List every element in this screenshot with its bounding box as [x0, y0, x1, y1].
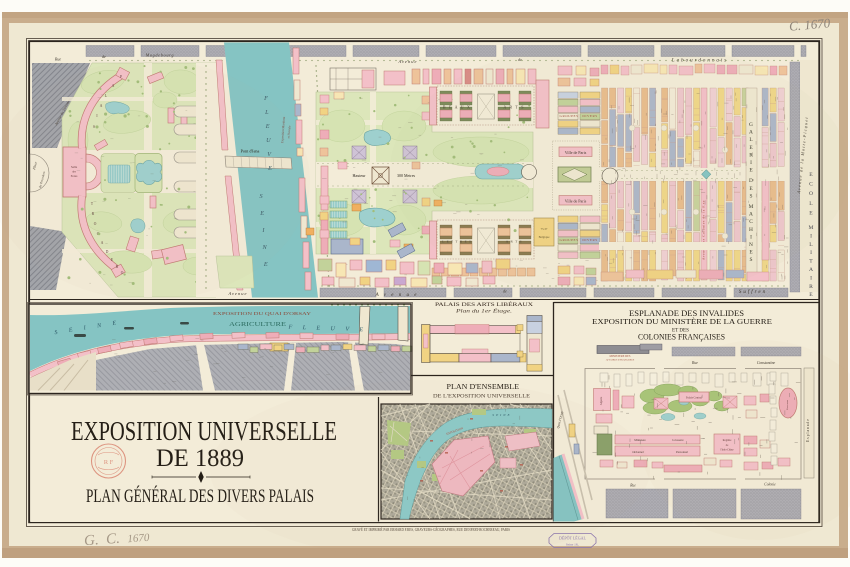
svg-text:Avenue: Avenue — [398, 59, 418, 64]
svg-text:R F: R F — [104, 459, 114, 466]
svg-text:AFFAIRES ETRANGERES: AFFAIRES ETRANGERES — [606, 359, 635, 362]
svg-text:ESPLANADE DES INVALIDES: ESPLANADE DES INVALIDES — [629, 309, 744, 318]
svg-text:A: A — [809, 267, 813, 273]
svg-text:EXPOSITION DU QUAI D'ORSAY: EXPOSITION DU QUAI D'ORSAY — [213, 311, 312, 316]
svg-text:AGRICULTURE: AGRICULTURE — [229, 321, 286, 328]
svg-text:E: E — [809, 292, 813, 298]
svg-text:R: R — [809, 284, 813, 290]
svg-text:de: de — [102, 54, 106, 59]
svg-text:A v e n u e: A v e n u e — [375, 293, 419, 298]
svg-text:Magdebourg: Magdebourg — [145, 53, 175, 58]
svg-text:PALAIS DES ARTS LIBÉRAUX: PALAIS DES ARTS LIBÉRAUX — [435, 300, 533, 308]
svg-text:Algerie: Algerie — [600, 396, 603, 405]
svg-text:Plan du 1er Étage.: Plan du 1er Étage. — [455, 309, 512, 315]
svg-text:T: T — [809, 259, 813, 265]
svg-text:Seine 18..: Seine 18.. — [566, 543, 580, 547]
svg-text:I: I — [810, 250, 812, 256]
svg-text:EXPOSITION DU MINISTÈRE DE LA: EXPOSITION DU MINISTÈRE DE LA GUERRE — [592, 316, 773, 326]
svg-text:Rue: Rue — [54, 57, 61, 62]
svg-text:Hauteur: Hauteur — [353, 173, 367, 178]
svg-text:de: de — [503, 289, 507, 294]
svg-text:COLONIES FRANÇAISES: COLONIES FRANÇAISES — [638, 333, 725, 342]
svg-text:Suffren: Suffren — [739, 290, 767, 295]
svg-text:I: I — [810, 275, 812, 281]
svg-text:Avenue: Avenue — [228, 291, 248, 296]
